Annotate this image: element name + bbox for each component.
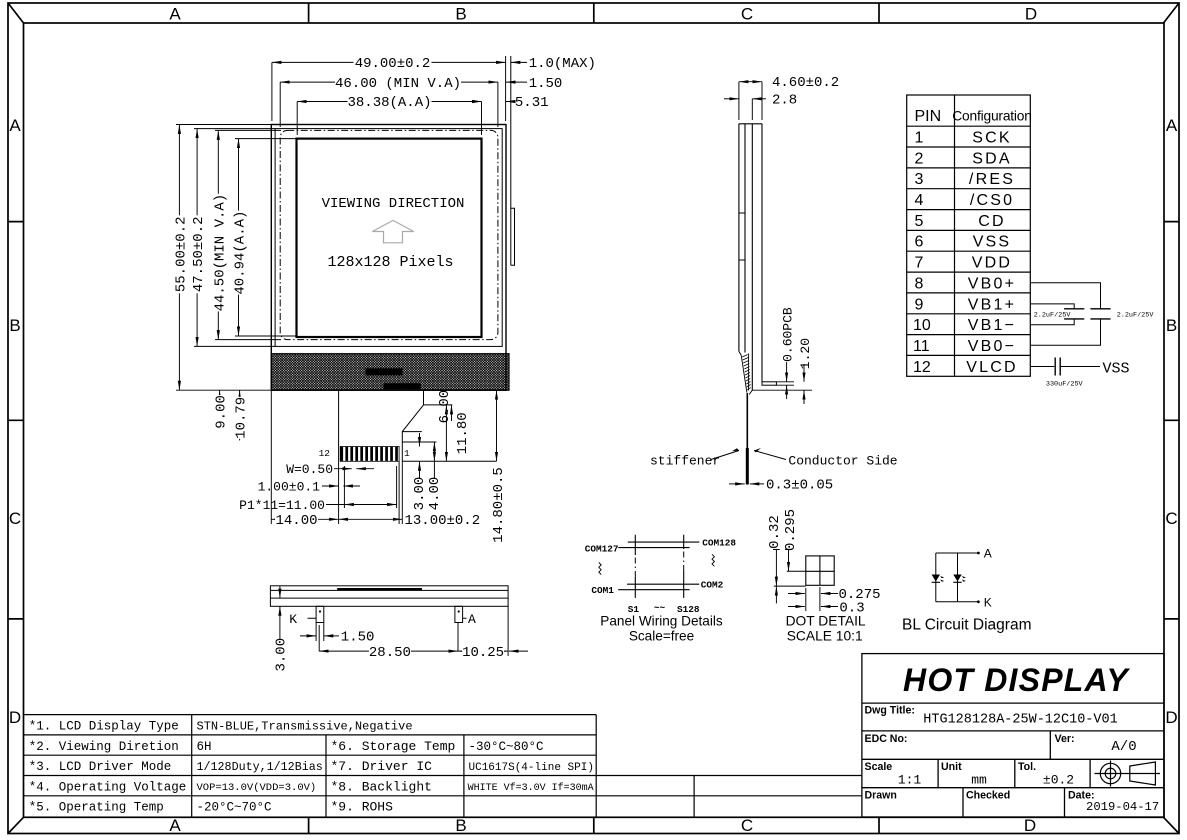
- svg-text:7: 7: [915, 255, 924, 272]
- svg-text:5: 5: [915, 213, 924, 230]
- svg-text:VSS: VSS: [1103, 361, 1130, 378]
- svg-text:1.0(MAX): 1.0(MAX): [529, 56, 596, 72]
- svg-text:C: C: [741, 816, 753, 835]
- svg-text:COM127: COM127: [585, 544, 619, 555]
- svg-text:330uF/25V: 330uF/25V: [1046, 380, 1084, 388]
- svg-text:DOT DETAIL: DOT DETAIL: [786, 613, 866, 628]
- svg-text:A: A: [984, 547, 992, 561]
- svg-text:2.2uF/25V: 2.2uF/25V: [1034, 311, 1072, 319]
- svg-text:stiffener: stiffener: [650, 454, 720, 469]
- svg-text:VLCD: VLCD: [966, 359, 1017, 376]
- svg-text:EDC No:: EDC No:: [865, 733, 908, 745]
- svg-text:40.94(A.A): 40.94(A.A): [233, 211, 249, 295]
- svg-text:1: 1: [404, 448, 410, 459]
- svg-text:0.3±0.05: 0.3±0.05: [766, 477, 833, 493]
- svg-text:VSS: VSS: [973, 234, 1012, 251]
- svg-text:*7. Driver IC: *7. Driver IC: [331, 759, 433, 774]
- svg-text:14.80±0.5: 14.80±0.5: [491, 467, 507, 543]
- svg-text:1.20: 1.20: [798, 338, 813, 369]
- svg-text:COM128: COM128: [702, 538, 736, 549]
- svg-text:*3. LCD Driver Mode: *3. LCD Driver Mode: [29, 760, 172, 774]
- svg-text:C: C: [1165, 509, 1177, 528]
- svg-text:A: A: [468, 612, 476, 627]
- svg-text:Unit: Unit: [941, 761, 962, 773]
- svg-text:8: 8: [915, 275, 924, 292]
- svg-text:A: A: [169, 5, 181, 24]
- svg-text:38.38(A.A): 38.38(A.A): [347, 95, 431, 111]
- svg-text:D: D: [1025, 5, 1037, 24]
- svg-text:Ver:: Ver:: [1055, 733, 1075, 745]
- svg-text:K: K: [289, 612, 297, 627]
- svg-text:*8. Backlight: *8. Backlight: [331, 779, 432, 794]
- svg-text:P1*11=11.00: P1*11=11.00: [239, 498, 325, 513]
- svg-text:±0.2: ±0.2: [1043, 773, 1074, 788]
- svg-text:*6. Storage Temp: *6. Storage Temp: [331, 739, 456, 754]
- svg-text:PIN: PIN: [915, 108, 942, 125]
- svg-text:*5. Operating Temp: *5. Operating Temp: [29, 801, 164, 815]
- svg-text:1.50: 1.50: [341, 629, 375, 645]
- svg-text:Configuration: Configuration: [952, 109, 1031, 124]
- svg-text:46.00 (MIN V.A): 46.00 (MIN V.A): [335, 76, 461, 92]
- svg-text:K: K: [984, 595, 992, 609]
- svg-text:~~: ~~: [654, 603, 666, 614]
- svg-text:*9. ROHS: *9. ROHS: [331, 800, 394, 815]
- svg-text:5.31: 5.31: [515, 95, 549, 111]
- svg-text:2: 2: [915, 150, 924, 167]
- svg-text:HTG128128A-25W-12C10-V01: HTG128128A-25W-12C10-V01: [923, 713, 1117, 728]
- svg-text:10.25: 10.25: [462, 645, 504, 661]
- svg-text:B: B: [455, 5, 466, 24]
- svg-text:14.00: 14.00: [275, 513, 317, 529]
- svg-text:9.00: 9.00: [214, 395, 230, 429]
- svg-text:128x128 Pixels: 128x128 Pixels: [327, 254, 453, 271]
- svg-text:Scale=free: Scale=free: [629, 628, 694, 643]
- svg-text:VB0−: VB0−: [968, 338, 1016, 355]
- svg-text:1.50: 1.50: [529, 76, 563, 92]
- svg-text:Panel Wiring Details: Panel Wiring Details: [600, 613, 723, 628]
- svg-text:STN-BLUE,Transmissive,Negative: STN-BLUE,Transmissive,Negative: [197, 720, 413, 734]
- svg-text:6H: 6H: [197, 740, 212, 754]
- svg-text:*1. LCD Display Type: *1. LCD Display Type: [29, 720, 179, 734]
- svg-text:12: 12: [319, 448, 331, 459]
- svg-text:1: 1: [915, 130, 924, 147]
- svg-text:A: A: [9, 116, 21, 135]
- svg-text:-30°C~80°C: -30°C~80°C: [469, 740, 544, 754]
- svg-text:-20°C~70°C: -20°C~70°C: [197, 801, 272, 815]
- svg-text:VDD: VDD: [972, 255, 1012, 272]
- svg-text:1:1: 1:1: [898, 773, 922, 788]
- svg-text:SDA: SDA: [972, 150, 1012, 167]
- svg-text:6: 6: [915, 234, 924, 251]
- svg-text:D: D: [1165, 708, 1177, 727]
- svg-text:3.00: 3.00: [273, 638, 289, 672]
- svg-text:10: 10: [913, 317, 931, 334]
- svg-text:B: B: [9, 316, 20, 335]
- svg-text:9: 9: [915, 296, 924, 313]
- svg-text:SCALE 10:1: SCALE 10:1: [787, 628, 863, 643]
- svg-text:4: 4: [915, 192, 924, 209]
- svg-text:13.00±0.2: 13.00±0.2: [405, 513, 481, 529]
- svg-text:Tol.: Tol.: [1018, 761, 1036, 773]
- svg-text:3.00: 3.00: [412, 477, 428, 511]
- svg-text:SCK: SCK: [972, 130, 1012, 147]
- svg-text:BL Circuit Diagram: BL Circuit Diagram: [902, 617, 1032, 634]
- svg-text:Drawn: Drawn: [865, 790, 897, 802]
- svg-text:UC1617S(4-line SPI): UC1617S(4-line SPI): [469, 762, 594, 774]
- svg-text:2.2uF/25V: 2.2uF/25V: [1117, 311, 1155, 319]
- svg-text:49.00±0.2: 49.00±0.2: [355, 56, 431, 72]
- svg-text:D: D: [9, 708, 21, 727]
- svg-text:0.60PCB: 0.60PCB: [781, 307, 796, 362]
- svg-text:*2. Viewing Diretion: *2. Viewing Diretion: [29, 740, 179, 754]
- svg-text:A: A: [169, 816, 181, 835]
- svg-text:mm: mm: [971, 773, 987, 788]
- svg-text:/CS0: /CS0: [970, 192, 1014, 209]
- svg-text:0.295: 0.295: [783, 509, 799, 551]
- svg-text:10.79: 10.79: [234, 397, 250, 439]
- svg-text:Scale: Scale: [865, 761, 893, 773]
- svg-text:A: A: [1166, 116, 1178, 135]
- svg-text:C: C: [741, 5, 753, 24]
- svg-text:2019-04-17: 2019-04-17: [1086, 800, 1159, 814]
- svg-text:/RES: /RES: [969, 171, 1015, 188]
- svg-text:11: 11: [913, 338, 930, 355]
- svg-text:VB0+: VB0+: [968, 275, 1016, 292]
- svg-text:B: B: [455, 816, 466, 835]
- svg-text:COM2: COM2: [701, 579, 724, 590]
- svg-text:Conductor Side: Conductor Side: [788, 454, 897, 469]
- svg-text:4.60±0.2: 4.60±0.2: [772, 75, 839, 91]
- svg-text:VB1+: VB1+: [968, 296, 1016, 313]
- svg-text:CD: CD: [978, 213, 1006, 230]
- svg-text:Dwg Title:: Dwg Title:: [865, 705, 915, 717]
- svg-text:55.00±0.2: 55.00±0.2: [173, 216, 189, 292]
- svg-text:6.00: 6.00: [437, 390, 453, 424]
- svg-text:2.8: 2.8: [772, 92, 797, 108]
- svg-text:B: B: [1166, 316, 1177, 335]
- svg-text:COM1: COM1: [591, 585, 614, 596]
- svg-text:28.50: 28.50: [369, 645, 411, 661]
- svg-text:VIEWING DIRECTION: VIEWING DIRECTION: [322, 196, 465, 212]
- svg-text:WHITE Vf=3.0V If=30mA: WHITE Vf=3.0V If=30mA: [468, 782, 594, 794]
- svg-text:1/128Duty,1/12Bias: 1/128Duty,1/12Bias: [197, 760, 323, 774]
- svg-text:*4. Operating Voltage: *4. Operating Voltage: [29, 780, 187, 794]
- svg-text:VOP=13.0V(VDD=3.0V): VOP=13.0V(VDD=3.0V): [197, 782, 317, 794]
- svg-text:11.80: 11.80: [455, 412, 471, 454]
- svg-text:Checked: Checked: [966, 790, 1010, 802]
- svg-text:0.32: 0.32: [767, 515, 783, 549]
- svg-text:3: 3: [915, 171, 924, 188]
- svg-text:HOT DISPLAY: HOT DISPLAY: [903, 662, 1130, 698]
- svg-text:A/0: A/0: [1111, 739, 1136, 755]
- svg-text:1.00±0.1: 1.00±0.1: [258, 480, 321, 495]
- svg-text:12: 12: [913, 359, 931, 376]
- svg-text:VB1−: VB1−: [968, 317, 1016, 334]
- svg-text:44.50(MIN V.A): 44.50(MIN V.A): [212, 194, 228, 312]
- svg-text:47.50±0.2: 47.50±0.2: [191, 216, 207, 292]
- svg-text:D: D: [1024, 816, 1036, 835]
- svg-text:W=0.50: W=0.50: [286, 462, 333, 477]
- svg-text:C: C: [9, 509, 21, 528]
- svg-text:4.00: 4.00: [427, 477, 443, 511]
